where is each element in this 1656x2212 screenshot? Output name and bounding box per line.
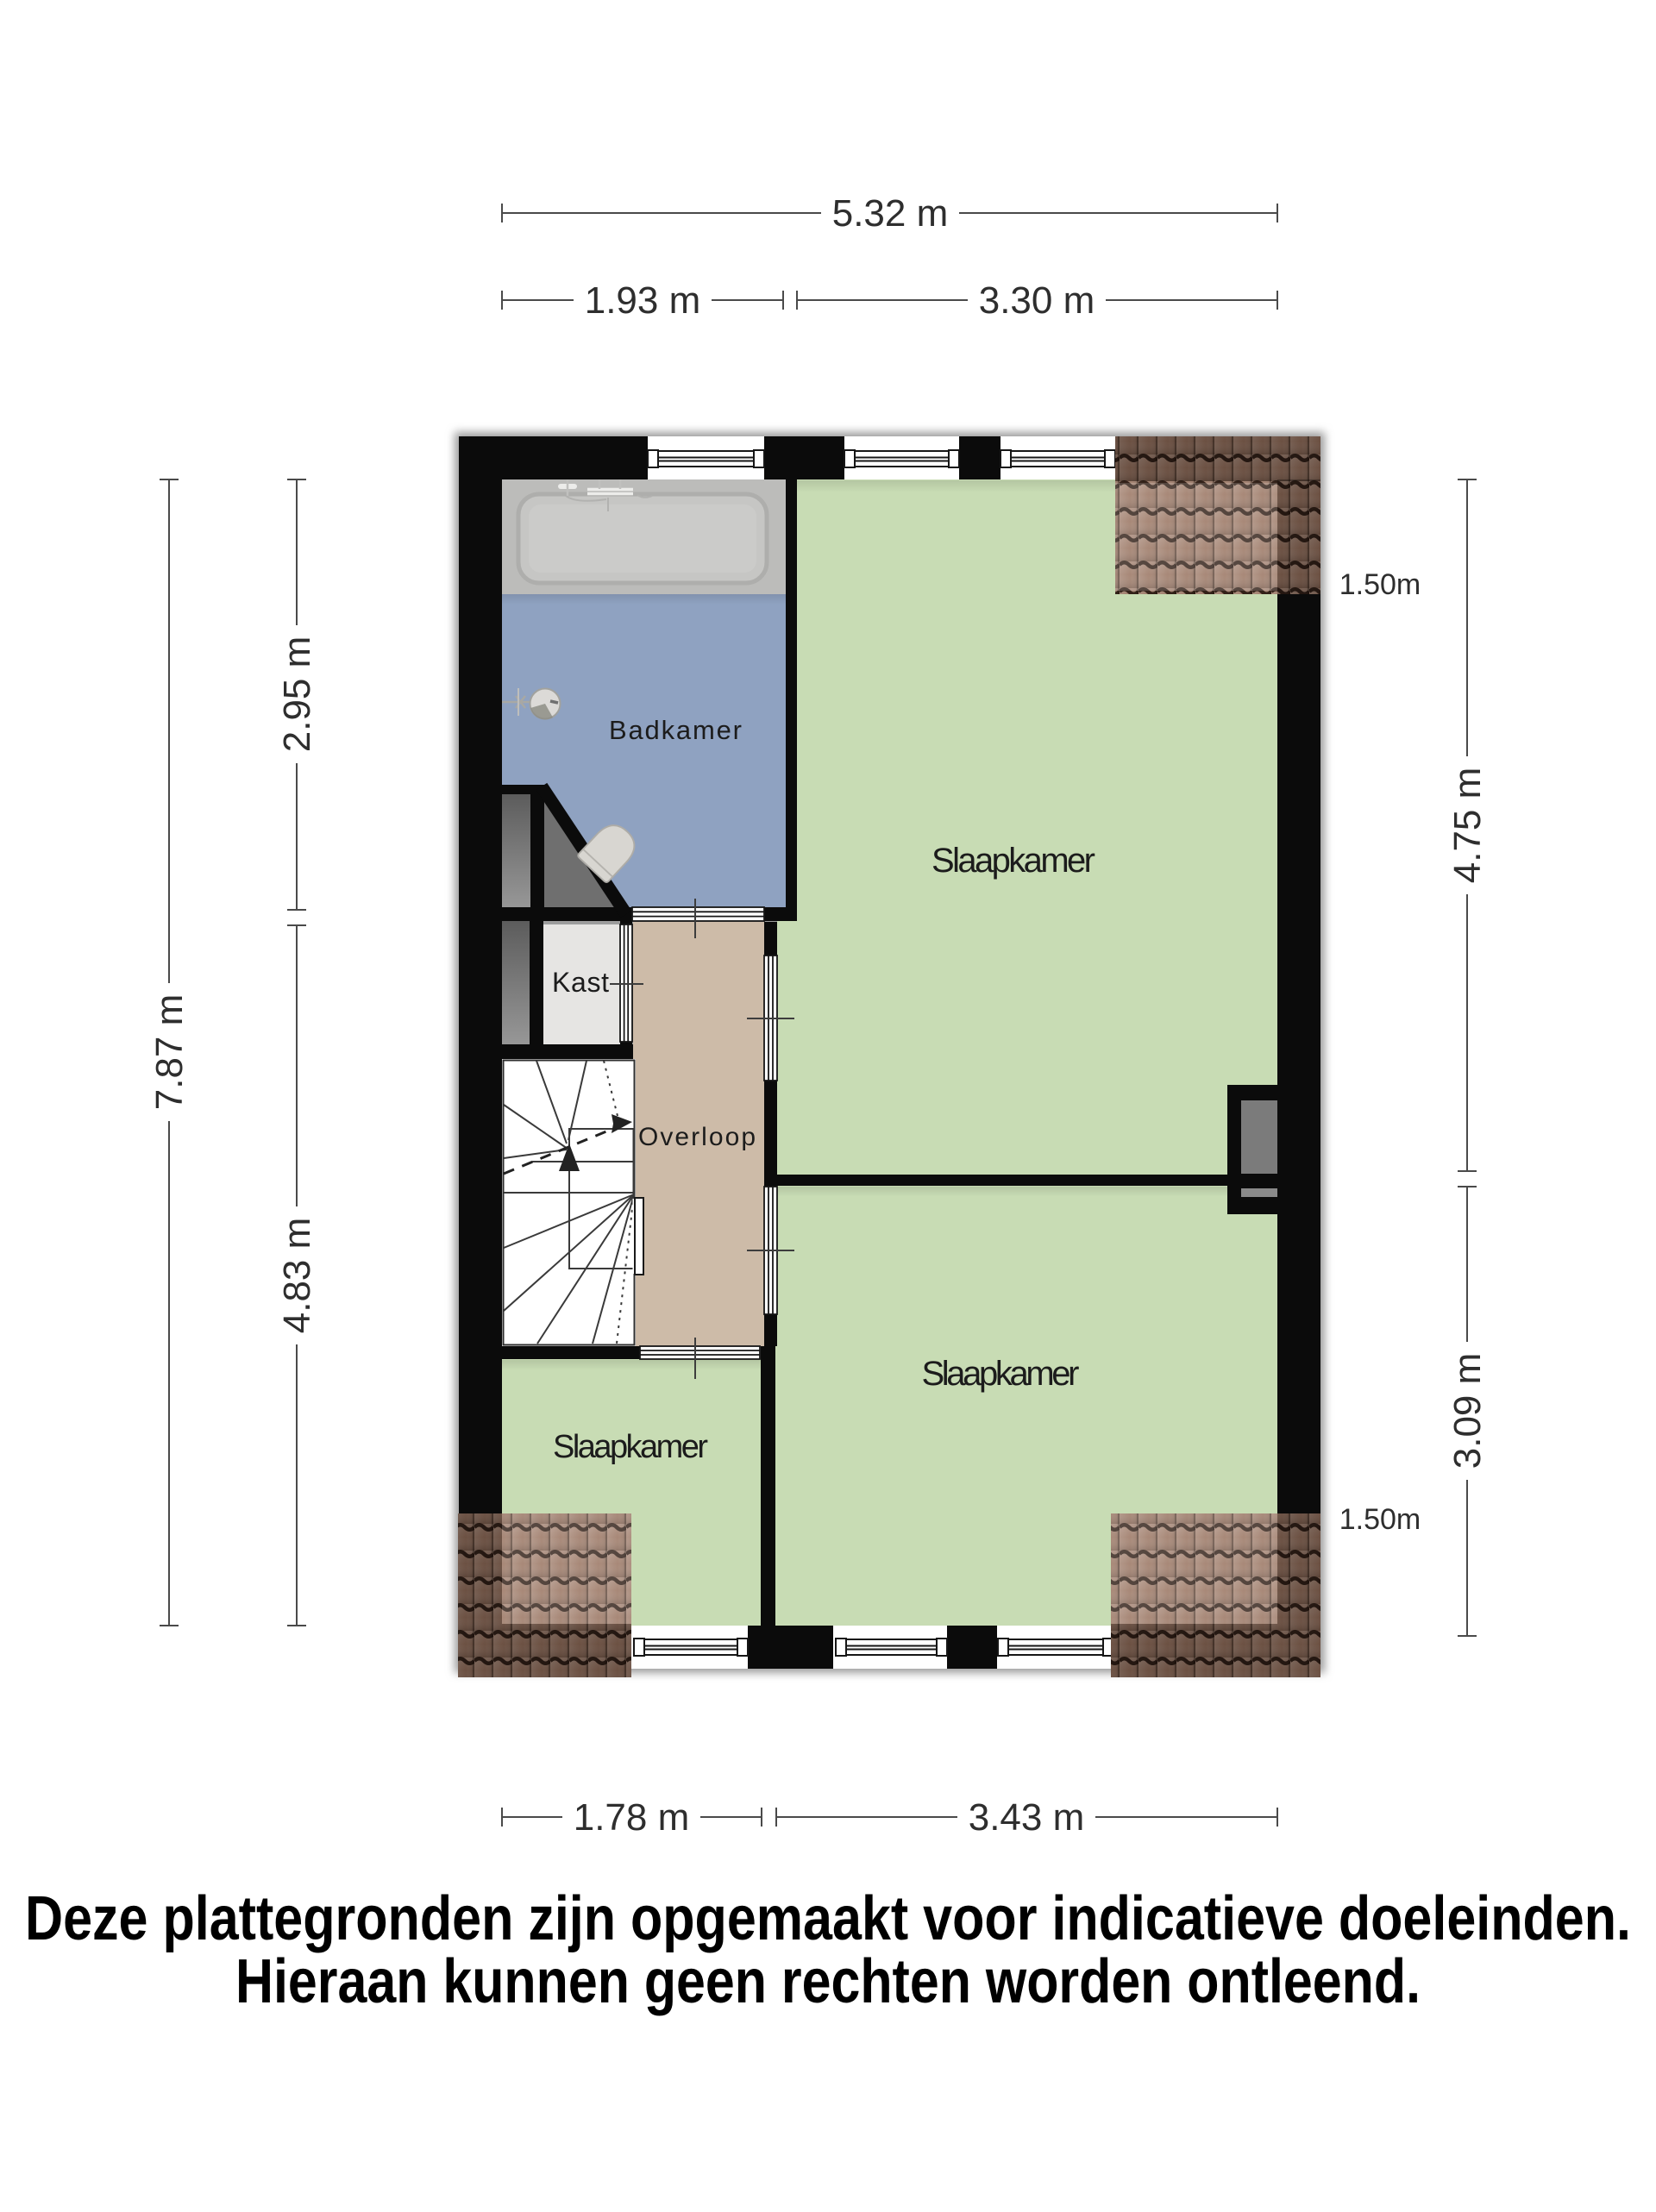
- svg-text:Slaapkamer: Slaapkamer: [922, 1355, 1080, 1393]
- svg-text:1.50m: 1.50m: [1339, 1503, 1421, 1536]
- svg-text:4.83 m: 4.83 m: [276, 1218, 318, 1334]
- svg-text:4.75 m: 4.75 m: [1446, 768, 1489, 884]
- svg-text:2.95 m: 2.95 m: [276, 636, 318, 753]
- svg-text:3.43 m: 3.43 m: [969, 1796, 1085, 1839]
- svg-text:Badkamer: Badkamer: [609, 715, 742, 745]
- svg-text:5.32 m: 5.32 m: [832, 192, 949, 235]
- svg-text:3.30 m: 3.30 m: [979, 279, 1095, 322]
- svg-text:1.78 m: 1.78 m: [574, 1796, 690, 1839]
- svg-text:Deze plattegronden zijn opgema: Deze plattegronden zijn opgemaakt voor i…: [25, 1884, 1631, 1953]
- svg-text:Kast: Kast: [552, 967, 609, 998]
- svg-text:7.87 m: 7.87 m: [148, 994, 191, 1111]
- svg-text:3.09 m: 3.09 m: [1446, 1353, 1489, 1469]
- svg-text:Hieraan kunnen geen rechten wo: Hieraan kunnen geen rechten worden ontle…: [235, 1947, 1421, 2016]
- svg-text:1.93 m: 1.93 m: [585, 279, 701, 322]
- svg-text:1.50m: 1.50m: [1339, 568, 1421, 601]
- svg-text:Overloop: Overloop: [638, 1123, 756, 1151]
- svg-text:Slaapkamer: Slaapkamer: [553, 1429, 708, 1465]
- svg-text:Slaapkamer: Slaapkamer: [931, 842, 1095, 880]
